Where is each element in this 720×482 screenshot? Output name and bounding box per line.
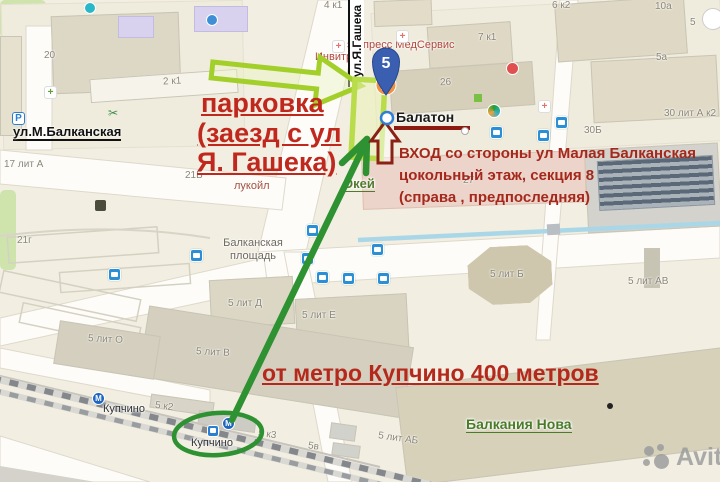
- annotation-entrance-line1: ВХОД со стороны ул Малая Балканская: [399, 145, 696, 162]
- map-canvas[interactable]: 20 2 к1 4 к1 6 к2 10а 5 5а 7 к1 26 30Б 3…: [0, 0, 720, 482]
- annotation-parking-line1: парковка: [201, 88, 324, 119]
- annotation-metro-distance: от метро Купчино 400 метров: [262, 360, 599, 387]
- avito-watermark: Avito: [642, 442, 720, 472]
- marker-number: 5: [382, 55, 391, 72]
- avito-logo-icon: [642, 442, 672, 472]
- annotation-entrance-line3: (справа , предпоследняя): [399, 189, 590, 206]
- kupchino-ellipse: [173, 410, 264, 458]
- annotation-parking-line3: Я. Гашека): [197, 147, 336, 178]
- annotation-entrance-line2: цокольный этаж, секция 8: [399, 167, 594, 184]
- avito-watermark-text: Avito: [676, 443, 720, 472]
- annotation-parking-line2: (заезд с ул: [197, 118, 341, 149]
- balaton-entrance-circle: [381, 112, 393, 124]
- annotation-layer: 5: [0, 0, 720, 482]
